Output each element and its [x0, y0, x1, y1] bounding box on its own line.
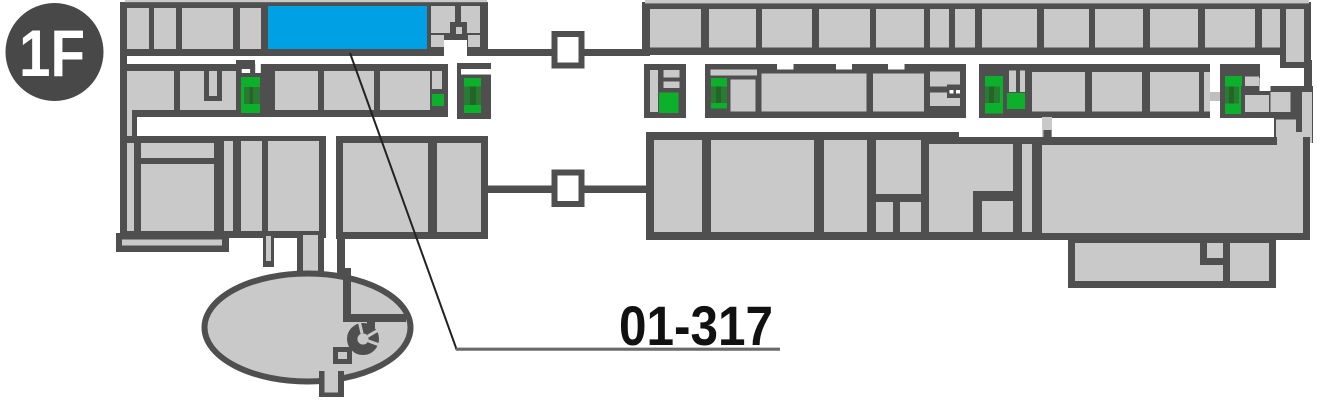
- svg-text:01-317: 01-317: [619, 294, 773, 357]
- svg-text:1F: 1F: [19, 16, 85, 90]
